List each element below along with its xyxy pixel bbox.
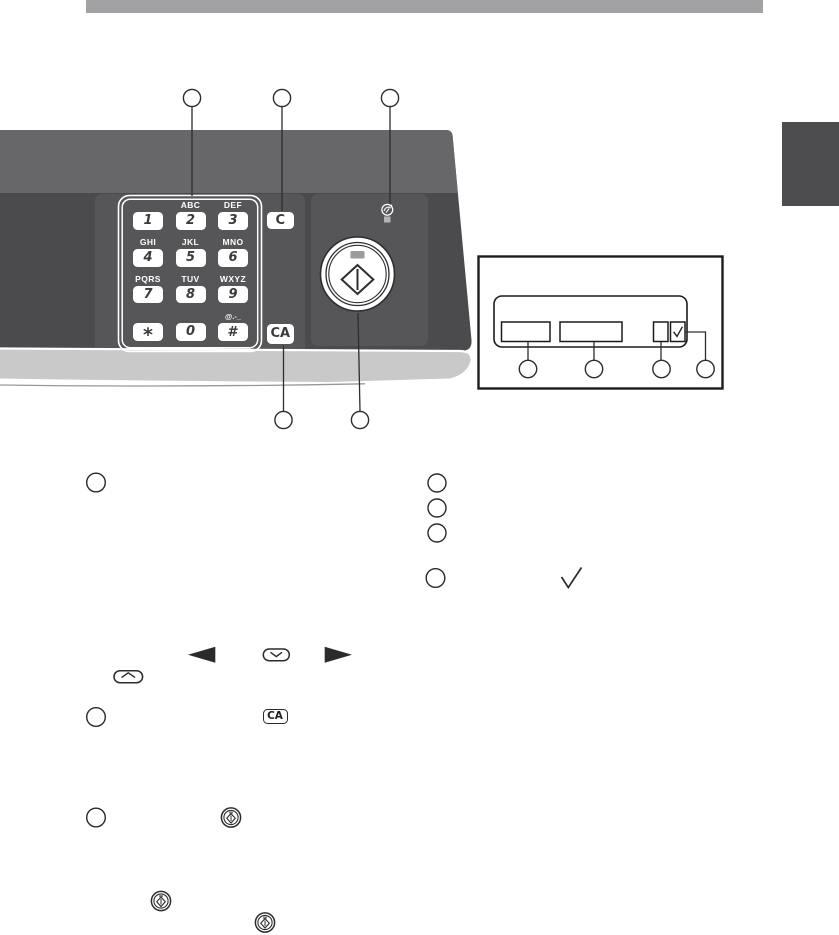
check-icon	[562, 568, 582, 588]
machine-bottom-line	[0, 384, 365, 386]
callout-circle	[428, 524, 446, 542]
display-segment-check	[671, 322, 686, 342]
energy-save-icon	[382, 204, 393, 215]
keypad-key-letters: PQRS	[133, 274, 163, 284]
keypad-key-letters: GHI	[133, 237, 163, 247]
start-button	[321, 237, 395, 311]
keypad-key-letters: @.-_	[218, 312, 248, 322]
clear-button: C	[267, 212, 294, 229]
display-segment-middle	[560, 322, 622, 342]
keypad-key-6: 6	[218, 249, 248, 267]
panel-top-band	[0, 130, 458, 193]
callout-circle	[87, 808, 106, 827]
callout-circle	[426, 569, 445, 588]
callout-circle	[428, 474, 446, 492]
panel-illustration	[0, 0, 839, 935]
callout-circle	[87, 473, 106, 492]
callout-circle	[87, 708, 106, 727]
callout-circle	[273, 89, 290, 106]
keypad-key-letters: WXYZ	[218, 274, 248, 284]
keypad-key-4: 4	[133, 249, 163, 267]
keypad-key-letters: JKL	[176, 237, 206, 247]
callout-circle	[428, 499, 446, 517]
inline-glyphs	[114, 647, 352, 932]
left-arrow-icon	[188, 647, 215, 663]
keypad-key-7: 7	[133, 286, 163, 304]
clear-all-button: CA	[267, 324, 295, 344]
callout-circle	[381, 89, 398, 106]
keypad-key-3: 3	[218, 212, 248, 230]
callout-circle	[653, 360, 670, 377]
display-inset	[479, 257, 723, 389]
clear-all-inline-icon: CA	[263, 709, 288, 725]
keypad-key-0: 0	[176, 323, 206, 341]
manual-page: ABC DEF GHI JKL MNO PQRS TUV WXYZ @.-_ 1…	[0, 0, 839, 935]
keypad-key-9: 9	[218, 286, 248, 304]
right-arrow-icon	[325, 647, 352, 663]
keypad-key-8: 8	[176, 286, 206, 304]
start-led	[351, 251, 365, 259]
energy-save-led	[384, 217, 391, 223]
start-icon	[255, 913, 274, 932]
keypad-key-letters: ABC	[176, 200, 206, 210]
display-segment-small	[654, 322, 669, 342]
keypad-key-star: *	[133, 323, 163, 341]
keypad-key-hash: #	[218, 323, 248, 341]
callout-circle	[183, 89, 200, 106]
keypad-key-letters: TUV	[176, 274, 206, 284]
panel-bevel	[0, 349, 471, 383]
chevron-up-button-icon	[114, 671, 143, 683]
keypad-key-letters: DEF	[218, 200, 248, 210]
callout-circle	[585, 360, 602, 377]
start-icon	[151, 891, 170, 910]
chevron-down-button-icon	[263, 649, 289, 661]
start-icon	[221, 808, 240, 827]
keypad-key-letters: MNO	[218, 237, 248, 247]
callout-circle	[351, 411, 368, 428]
keypad-key-5: 5	[176, 249, 206, 267]
callout-circle	[519, 360, 536, 377]
callout-circle	[697, 360, 714, 377]
callout-circle	[275, 411, 292, 428]
display-segment-left	[502, 322, 551, 342]
keypad-key-1: 1	[133, 212, 163, 230]
keypad-key-2: 2	[176, 212, 206, 230]
